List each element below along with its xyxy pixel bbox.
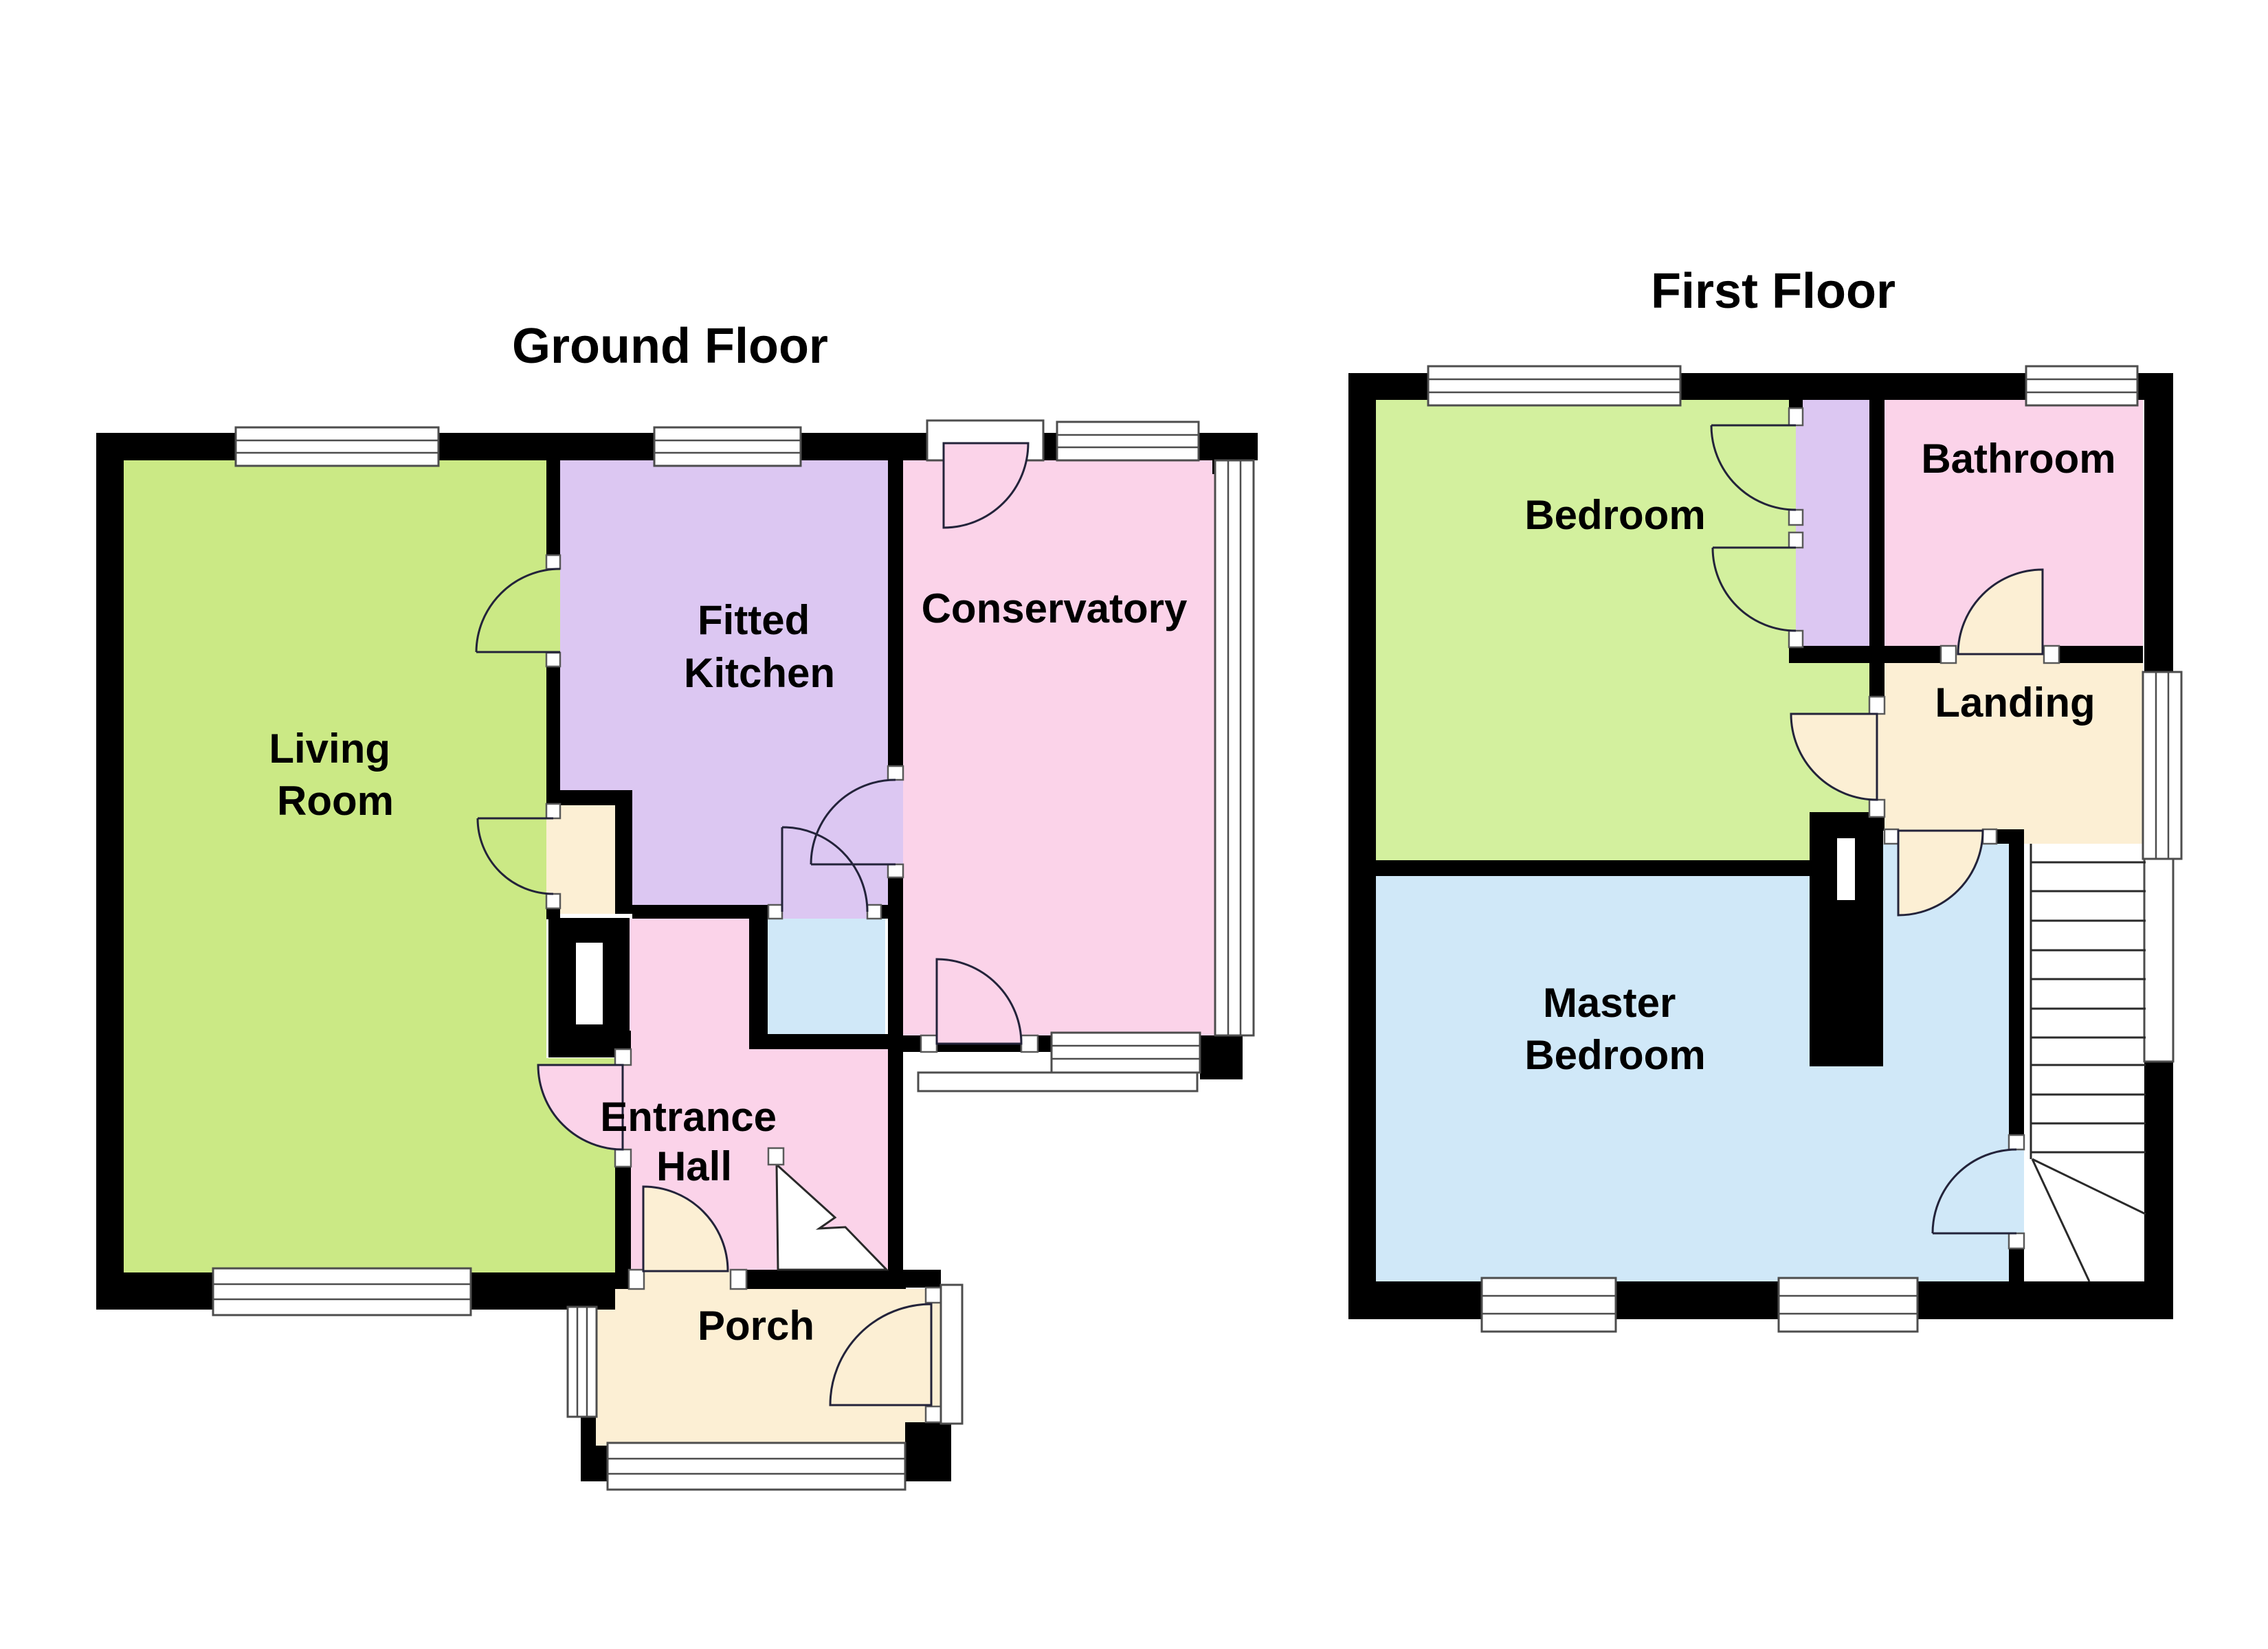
opening-fill [782, 905, 867, 919]
wall [1869, 400, 1885, 646]
wall [888, 919, 903, 1034]
wall [546, 666, 560, 804]
window-landing-right [2143, 672, 2181, 1062]
door-jamb [921, 1035, 937, 1052]
wall [881, 905, 903, 919]
chimney-flue [1837, 838, 1855, 900]
window-bedroom-top [1428, 366, 1680, 405]
wall [2009, 844, 2024, 1135]
opening-fill [546, 569, 560, 653]
wall [1376, 860, 1810, 876]
wall [2144, 373, 2173, 672]
door-jamb [1789, 532, 1803, 548]
ground-floor-plan: Ground Floor Living Room Fitted Kitchen … [96, 319, 1258, 1490]
door-jamb [1789, 631, 1803, 647]
door-jamb [1869, 800, 1885, 817]
window-recess [2144, 859, 2173, 1062]
opening-fill [644, 1270, 731, 1289]
window-living-room-bottom [213, 1268, 471, 1315]
door-jamb [546, 804, 560, 818]
stairs-newel [768, 1148, 783, 1165]
door-frame-porch-right [941, 1285, 962, 1424]
wall [746, 1270, 906, 1289]
wall [1997, 829, 2024, 844]
door-jamb [867, 905, 881, 919]
door-jamb [1789, 510, 1803, 525]
door-jamb [926, 1406, 941, 1422]
label-bathroom: Bathroom [1921, 436, 2115, 482]
wall [2009, 1248, 2024, 1281]
door-jamb [731, 1270, 746, 1289]
door-jamb [2044, 646, 2059, 663]
wall [1796, 646, 1885, 663]
wall [1869, 663, 1885, 697]
wall [615, 790, 632, 914]
window-living-room-top [236, 427, 438, 466]
window-master-bottom-right [1779, 1278, 1917, 1332]
door-jamb [615, 1149, 631, 1167]
stairwell-area [2024, 844, 2146, 1281]
door-jamb [768, 905, 782, 919]
wall [749, 1034, 903, 1049]
window-kitchen-top [654, 427, 801, 466]
wall [888, 877, 903, 905]
wall [96, 433, 124, 1310]
window-porch-left [568, 1307, 597, 1417]
opening-fill [888, 780, 903, 864]
floor-title-ground: Ground Floor [512, 319, 828, 374]
door-jamb [1941, 646, 1956, 663]
wall [905, 1422, 951, 1481]
label-bedroom: Bedroom [1524, 492, 1705, 538]
window-conservatory-top [1057, 422, 1199, 460]
door-jamb [615, 1049, 631, 1065]
door-jamb [1885, 829, 1898, 844]
wall [2144, 1062, 2173, 1319]
wall [1348, 1281, 2173, 1319]
label-porch: Porch [698, 1303, 814, 1349]
door-jamb [629, 1270, 644, 1289]
label-conservatory: Conservatory [922, 585, 1188, 631]
door-jamb [2009, 1233, 2024, 1248]
wall [615, 1270, 629, 1289]
first-floor-plan: First Floor Bedroom Bathroom Landing Mas… [1348, 264, 2181, 1332]
wall [1348, 373, 1376, 1319]
door-jamb [2009, 1135, 2024, 1149]
window-porch-bottom [608, 1443, 905, 1490]
opening-fill [546, 818, 561, 894]
wall [632, 905, 768, 919]
wall [1789, 400, 1803, 408]
wall [888, 433, 903, 766]
room-wc [768, 919, 885, 1034]
opening-fill [2009, 1149, 2024, 1233]
wall [546, 908, 560, 919]
room-cupboard [1796, 400, 1869, 646]
door-jamb [546, 653, 560, 666]
room-conservatory [903, 460, 1215, 1035]
wall [615, 1167, 631, 1272]
room-living-room [124, 460, 615, 1272]
door-jamb [1869, 697, 1885, 714]
door-jamb [546, 555, 560, 569]
door-jamb [926, 1288, 941, 1303]
window-conservatory-right [1215, 460, 1254, 1035]
wall [888, 1049, 903, 1271]
door-jamb [1021, 1035, 1038, 1052]
floorplan-canvas: Ground Floor Living Room Fitted Kitchen … [0, 0, 2268, 1649]
label-landing: Landing [1935, 680, 2095, 726]
wall [749, 919, 768, 1034]
door-jamb [546, 894, 560, 908]
floor-title-first: First Floor [1651, 264, 1895, 319]
door-jamb [888, 766, 903, 780]
window-bathroom-top [2026, 366, 2137, 405]
door-jamb [888, 864, 903, 877]
chimney-flue [576, 943, 603, 1024]
wall [905, 1270, 941, 1288]
room-cupboard-nook [560, 805, 615, 914]
door-jamb [1789, 408, 1803, 425]
wall [1200, 1035, 1243, 1079]
window-sill [918, 1073, 1197, 1091]
wall [546, 460, 560, 555]
door-jamb [1983, 829, 1997, 844]
window-master-bottom-left [1482, 1278, 1616, 1332]
